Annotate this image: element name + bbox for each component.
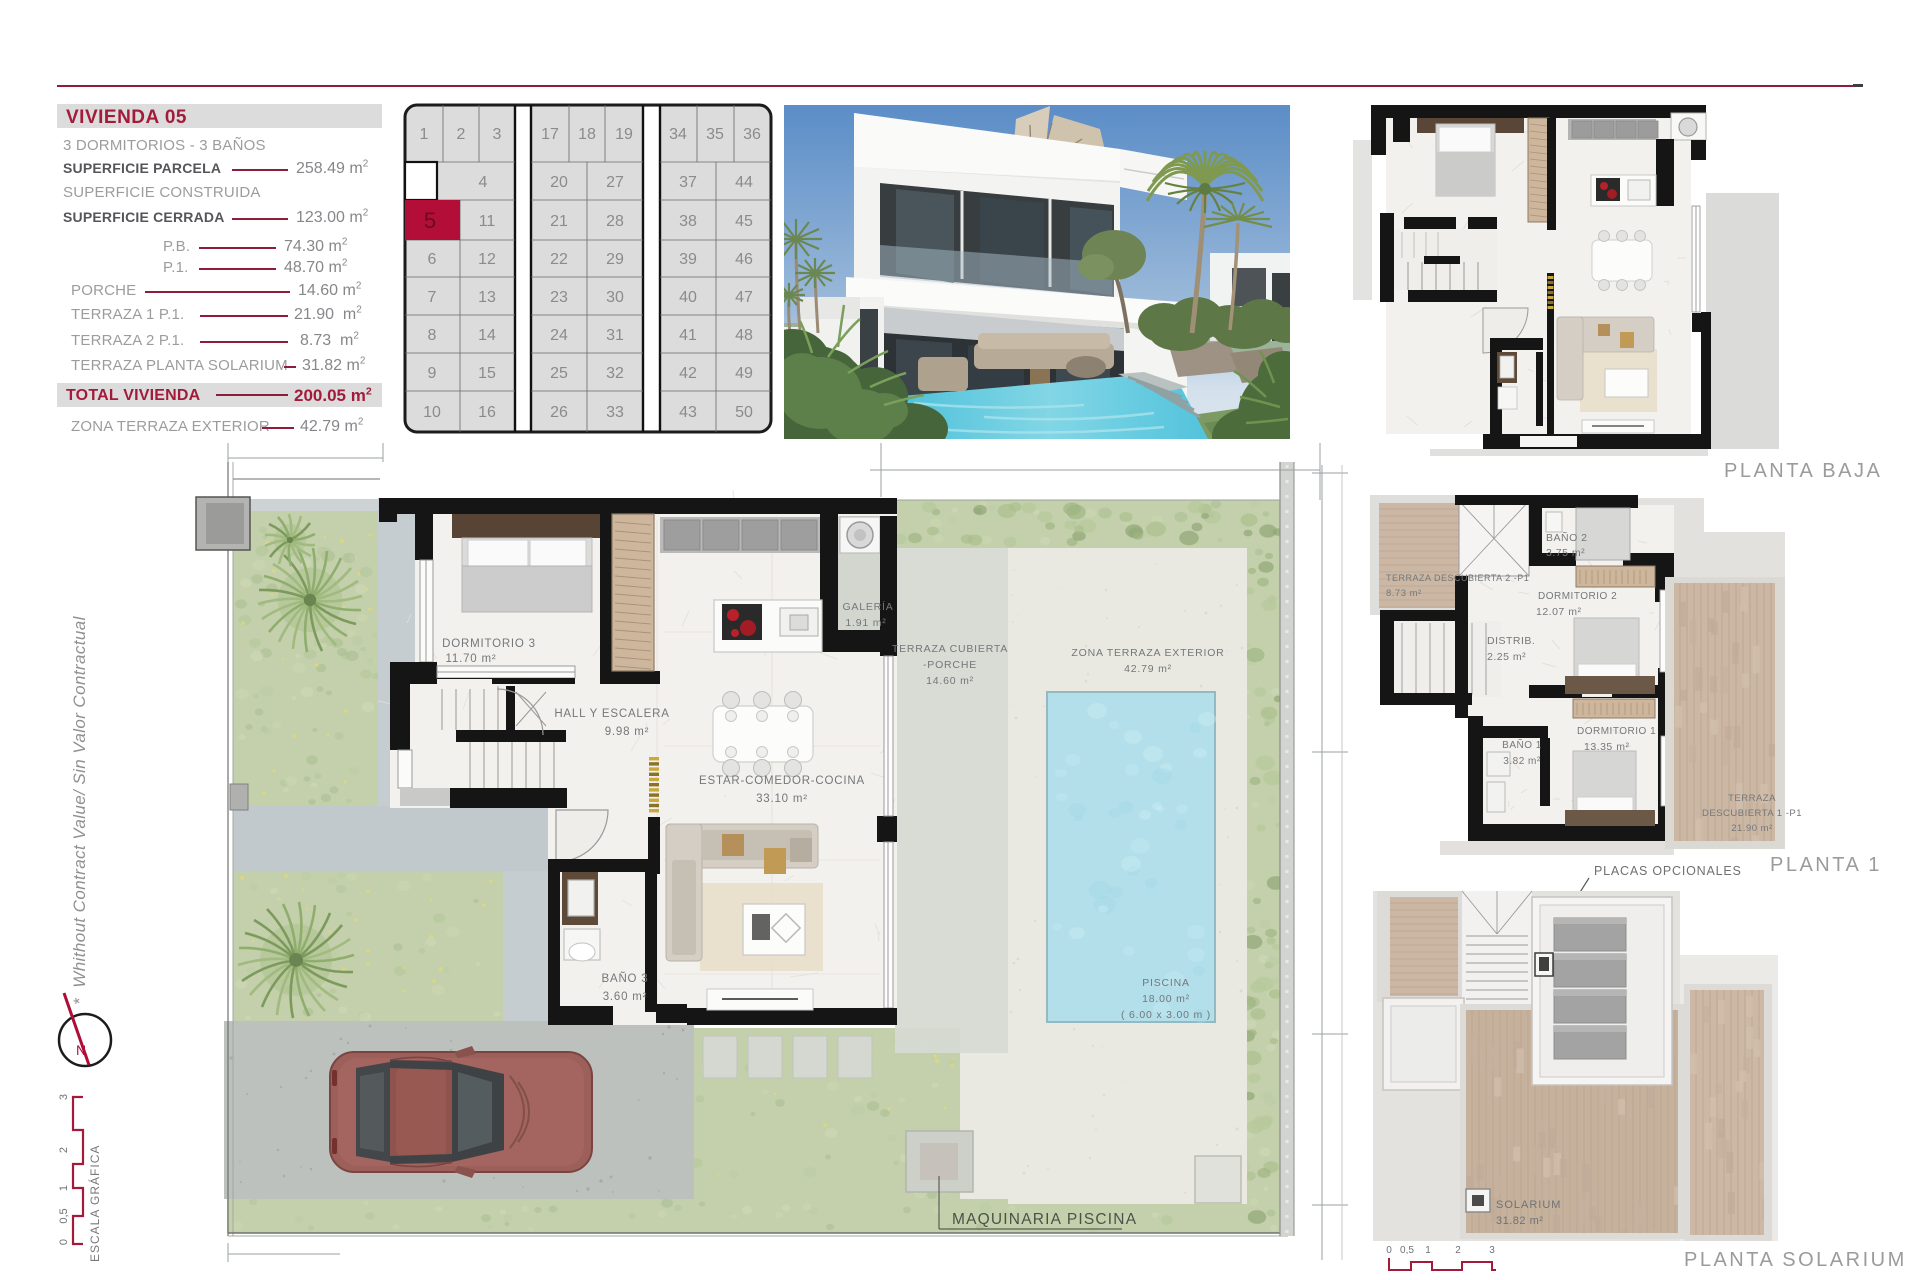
svg-text:18: 18	[578, 126, 596, 143]
svg-text:0: 0	[58, 1239, 70, 1245]
svg-text:21.90 m²: 21.90 m²	[1731, 823, 1773, 834]
svg-text:PISCINA: PISCINA	[1142, 977, 1190, 989]
svg-text:TERRAZA: TERRAZA	[1728, 793, 1776, 804]
svg-text:41: 41	[679, 327, 697, 344]
svg-text:25: 25	[550, 365, 568, 382]
svg-text:8.73 m²: 8.73 m²	[1386, 588, 1422, 599]
svg-text:49: 49	[735, 365, 753, 382]
svg-text:9: 9	[428, 365, 437, 382]
svg-text:24: 24	[550, 327, 568, 344]
svg-text:12.07 m²: 12.07 m²	[1536, 606, 1581, 618]
svg-text:1: 1	[58, 1185, 70, 1191]
svg-text:29: 29	[606, 251, 624, 268]
svg-text:10: 10	[423, 404, 441, 421]
svg-text:45: 45	[735, 213, 753, 230]
svg-text:BAÑO 3: BAÑO 3	[602, 972, 649, 985]
svg-text:DORMITORIO 1: DORMITORIO 1	[1577, 726, 1656, 737]
svg-text:11: 11	[479, 213, 496, 230]
svg-text:3: 3	[493, 126, 502, 143]
svg-text:22: 22	[550, 251, 568, 268]
svg-text:12: 12	[478, 251, 496, 268]
svg-text:3: 3	[58, 1094, 70, 1100]
svg-text:ZONA TERRAZA EXTERIOR: ZONA TERRAZA EXTERIOR	[1071, 647, 1224, 659]
svg-text:2: 2	[58, 1147, 70, 1153]
svg-text:N: N	[76, 1042, 86, 1058]
svg-text:32: 32	[606, 365, 624, 382]
svg-text:9.98 m²: 9.98 m²	[605, 726, 650, 738]
svg-text:15: 15	[478, 365, 496, 382]
svg-text:0,5: 0,5	[1400, 1245, 1414, 1256]
svg-text:42.79 m²: 42.79 m²	[1124, 663, 1172, 675]
svg-text:1: 1	[1425, 1245, 1431, 1256]
svg-text:13.35 m²: 13.35 m²	[1584, 741, 1629, 753]
svg-text:34: 34	[669, 126, 687, 143]
svg-text:28: 28	[606, 213, 624, 230]
svg-text:DESCUBIERTA 1 -P1: DESCUBIERTA 1 -P1	[1702, 808, 1802, 819]
svg-text:DORMITORIO 3: DORMITORIO 3	[442, 638, 536, 650]
svg-text:44: 44	[735, 174, 753, 191]
svg-text:DISTRIB.: DISTRIB.	[1487, 635, 1535, 647]
svg-text:8: 8	[428, 327, 437, 344]
svg-text:1: 1	[420, 126, 429, 143]
svg-text:27: 27	[606, 174, 624, 191]
svg-text:30: 30	[606, 289, 624, 306]
svg-text:18.00 m²: 18.00 m²	[1142, 993, 1190, 1005]
svg-text:2: 2	[1455, 1245, 1461, 1256]
svg-text:42: 42	[679, 365, 697, 382]
svg-text:46: 46	[735, 251, 753, 268]
svg-text:11.70 m²: 11.70 m²	[446, 653, 497, 665]
svg-text:38: 38	[679, 213, 697, 230]
svg-text:50: 50	[735, 404, 753, 421]
svg-text:BAÑO 2: BAÑO 2	[1546, 531, 1588, 544]
svg-text:5: 5	[424, 208, 436, 233]
svg-text:TERRAZA CUBIERTA: TERRAZA CUBIERTA	[892, 643, 1008, 655]
svg-text:19: 19	[615, 126, 633, 143]
svg-text:13: 13	[478, 289, 496, 306]
svg-text:( 6.00 x 3.00 m ): ( 6.00 x 3.00 m )	[1121, 1009, 1211, 1021]
svg-text:37: 37	[679, 174, 697, 191]
svg-text:16: 16	[478, 404, 496, 421]
svg-text:3.75 m²: 3.75 m²	[1546, 547, 1585, 559]
svg-text:DORMITORIO 2: DORMITORIO 2	[1538, 591, 1617, 602]
svg-text:39: 39	[679, 251, 697, 268]
svg-text:2: 2	[457, 126, 466, 143]
svg-text:1.91 m²: 1.91 m²	[845, 617, 886, 629]
svg-text:2.25 m²: 2.25 m²	[1487, 651, 1526, 663]
svg-text:6: 6	[428, 251, 437, 268]
svg-text:33.10 m²: 33.10 m²	[756, 793, 808, 805]
svg-text:3.82 m²: 3.82 m²	[1503, 756, 1541, 767]
svg-text:4: 4	[479, 174, 488, 191]
svg-text:31.82 m²: 31.82 m²	[1496, 1215, 1543, 1227]
svg-text:GALERÍA: GALERÍA	[842, 600, 893, 613]
svg-text:47: 47	[735, 289, 753, 306]
svg-text:21: 21	[550, 213, 568, 230]
svg-text:23: 23	[550, 289, 568, 306]
svg-text:3.60 m²: 3.60 m²	[603, 991, 648, 1003]
svg-text:17: 17	[541, 126, 559, 143]
svg-text:BAÑO 1: BAÑO 1	[1502, 738, 1542, 751]
svg-text:20: 20	[550, 174, 568, 191]
svg-text:35: 35	[706, 126, 724, 143]
svg-text:TERRAZA DESCUBIERTA 2 -P1: TERRAZA DESCUBIERTA 2 -P1	[1386, 573, 1529, 583]
svg-text:SOLARIUM: SOLARIUM	[1496, 1199, 1561, 1211]
svg-text:7: 7	[428, 289, 437, 306]
svg-text:0: 0	[1386, 1245, 1392, 1256]
svg-text:33: 33	[606, 404, 624, 421]
svg-text:48: 48	[735, 327, 753, 344]
svg-text:14: 14	[478, 327, 496, 344]
svg-text:-PORCHE: -PORCHE	[923, 659, 977, 671]
svg-text:31: 31	[606, 327, 624, 344]
svg-text:43: 43	[679, 404, 697, 421]
svg-text:ESTAR-COMEDOR-COCINA: ESTAR-COMEDOR-COCINA	[699, 775, 865, 787]
svg-text:26: 26	[550, 404, 568, 421]
svg-text:0,5: 0,5	[58, 1208, 70, 1223]
svg-text:36: 36	[743, 126, 761, 143]
svg-text:3: 3	[1489, 1245, 1495, 1256]
svg-text:40: 40	[679, 289, 697, 306]
svg-text:HALL Y ESCALERA: HALL Y ESCALERA	[554, 708, 669, 720]
svg-text:14.60 m²: 14.60 m²	[926, 675, 974, 687]
svg-text:MAQUINARIA PISCINA: MAQUINARIA PISCINA	[952, 1211, 1137, 1228]
